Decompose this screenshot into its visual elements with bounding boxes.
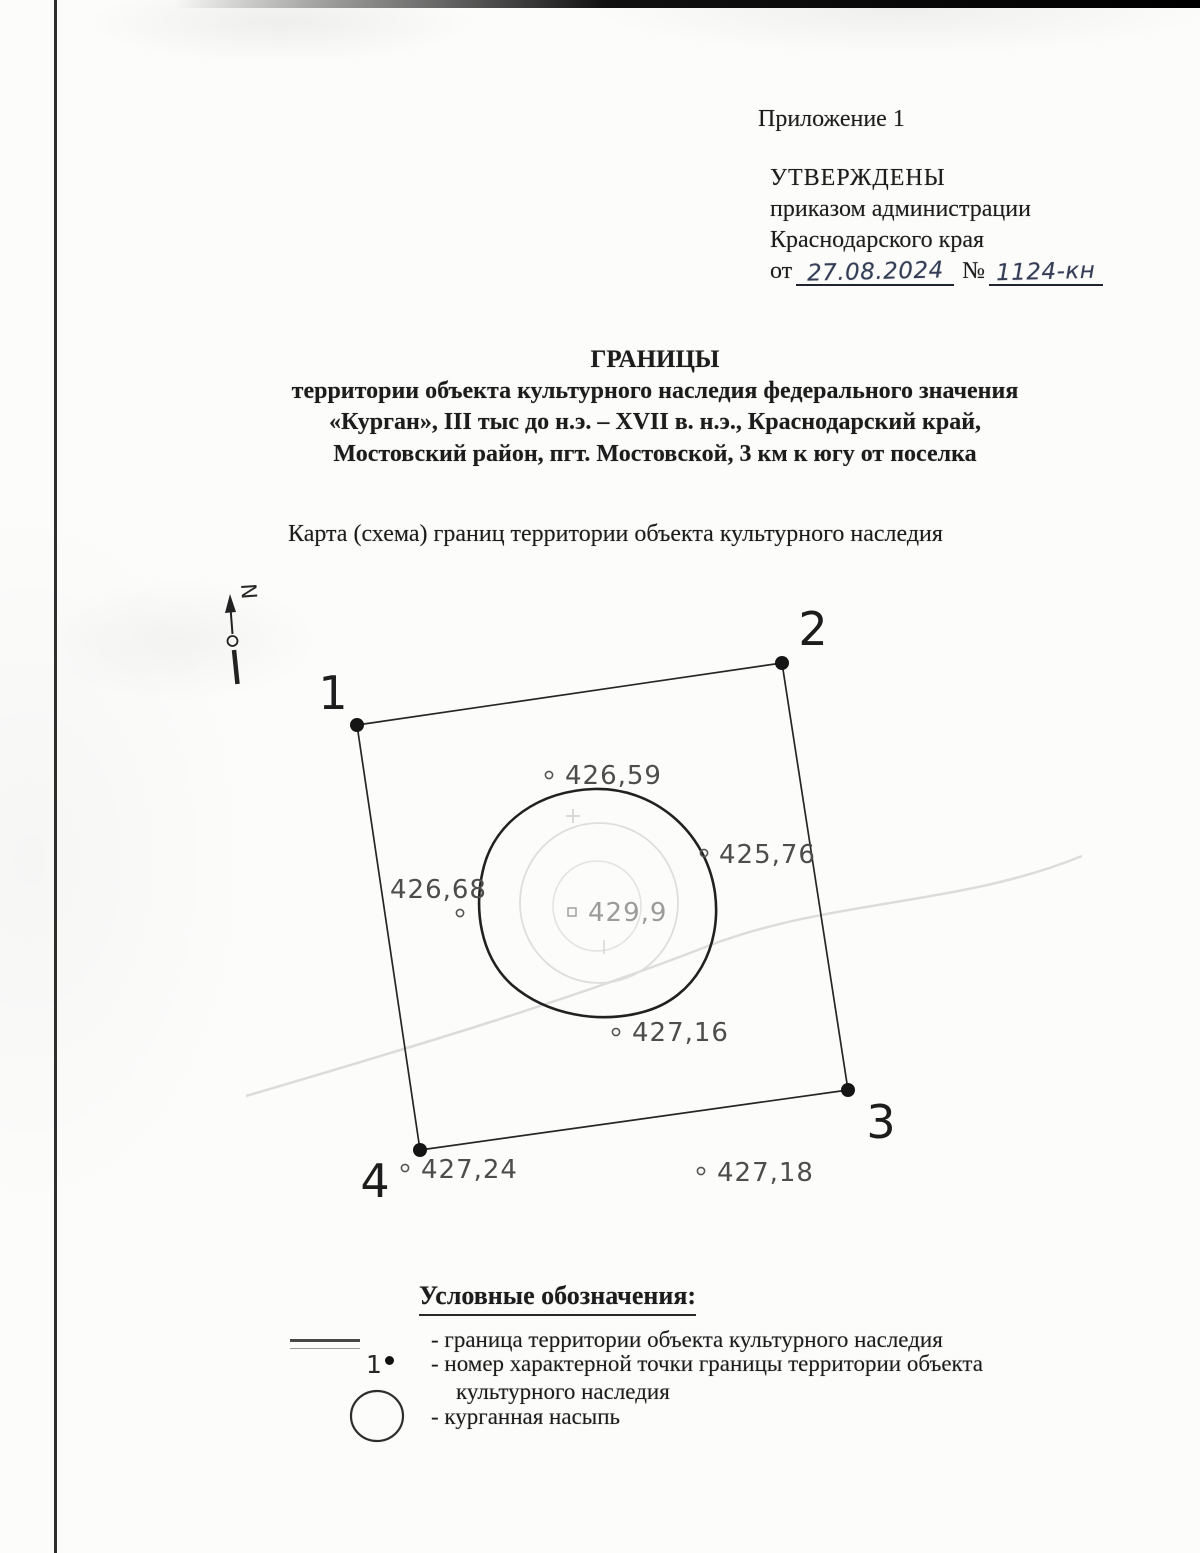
title-line-2: территории объекта культурного наследия … (100, 376, 1200, 408)
handwritten-date: 27.08.2024 (807, 257, 944, 286)
north-circle (228, 636, 238, 646)
number-underline: 1124-кн (989, 258, 1103, 286)
elevation-label: 427,24 (421, 1155, 518, 1185)
handwritten-number: 1124-кн (996, 258, 1096, 286)
title-heading: ГРАНИЦЫ (100, 344, 1200, 376)
north-shaft-upper (231, 608, 233, 634)
legend-boundary-line-symbol (290, 1339, 360, 1349)
date-underline: 27.08.2024 (796, 258, 954, 286)
approval-line-region: Краснодарского края (770, 225, 1110, 256)
scan-top-edge-bar (175, 0, 1200, 8)
vertex-dot (775, 656, 789, 670)
vertex-label: 1 (318, 666, 347, 720)
elevation-label: 426,68 (390, 875, 487, 905)
scanned-document-page: Приложение 1 УТВЕРЖДЕНЫ приказом админис… (0, 0, 1200, 1553)
elevation-label: 429,9 (588, 898, 667, 928)
document-title-block: ГРАНИЦЫ территории объекта культурного н… (100, 344, 1200, 470)
legend-point-dot-icon (385, 1356, 394, 1365)
legend-item-point-line1: - номер характерной точки границы террит… (431, 1351, 983, 1377)
inner-contour-inner (553, 861, 641, 951)
elevation-marker-circle (401, 1164, 408, 1171)
terrain-contour-line (246, 856, 1082, 1096)
north-arrow: N (225, 583, 261, 684)
elevation-marker-circle (697, 1167, 704, 1174)
date-prefix-label: от (770, 258, 792, 284)
north-letter: N (236, 583, 261, 600)
elevation-group: 426,59425,76426,68429,9427,16427,24427,1… (390, 761, 816, 1188)
vertex-dot (350, 718, 364, 732)
vertex-group: 1234 (318, 602, 895, 1208)
legend-item-boundary: - граница территории объекта культурного… (431, 1327, 943, 1353)
elevation-label: 426,59 (565, 761, 662, 791)
title-line-4: Мостовский район, пгт. Мостовской, 3 км … (100, 439, 1200, 471)
page-left-border-line (54, 0, 57, 1553)
legend-item-mound: - курганная насыпь (431, 1404, 620, 1430)
elevation-label: 425,76 (719, 840, 816, 870)
mound-outline (479, 789, 716, 1017)
mound-circle-icon (351, 1391, 403, 1441)
north-arrowhead-icon (225, 594, 236, 613)
legend-item-point-line2: культурного наследия (456, 1379, 670, 1405)
approval-block: УТВЕРЖДЕНЫ приказом администрации Красно… (770, 163, 1110, 287)
elevation-marker-square (568, 908, 576, 916)
elevation-marker-circle (545, 771, 552, 778)
legend-point-digit: 1 (366, 1350, 382, 1379)
boundary-polygon (357, 663, 848, 1150)
inner-contour-outer (520, 823, 678, 983)
vertex-label: 3 (866, 1095, 895, 1149)
appendix-label: Приложение 1 (758, 106, 905, 133)
approval-line-order: приказом администрации (770, 194, 1110, 225)
mound-inner-contours (520, 809, 678, 983)
elevation-marker-circle (456, 909, 463, 916)
elevation-label: 427,16 (632, 1018, 729, 1048)
elevation-label: 427,18 (717, 1158, 814, 1188)
vertex-dot (413, 1143, 427, 1157)
map-caption: Карта (схема) границ территории объекта … (288, 521, 943, 548)
number-sign-label: № (962, 258, 985, 284)
title-line-3: «Курган», III тыс до н.э. – XVII в. н.э.… (100, 407, 1200, 439)
legend-mound-circle-symbol (348, 1389, 406, 1444)
legend-point-number-symbol: 1 (366, 1350, 394, 1379)
approval-line-approved: УТВЕРЖДЕНЫ (770, 163, 1110, 194)
vertex-label: 4 (360, 1154, 389, 1208)
elevation-marker-circle (612, 1028, 619, 1035)
approval-date-number-row: от27.08.2024№1124-кн (770, 256, 1110, 287)
north-shaft-lower (234, 650, 238, 684)
faint-cross-mark (566, 809, 580, 823)
vertex-label: 2 (798, 602, 827, 656)
legend-heading: Условные обозначения: (419, 1281, 696, 1316)
elevation-marker-circle (700, 849, 707, 856)
vertex-dot (841, 1083, 855, 1097)
boundary-group (357, 663, 848, 1150)
